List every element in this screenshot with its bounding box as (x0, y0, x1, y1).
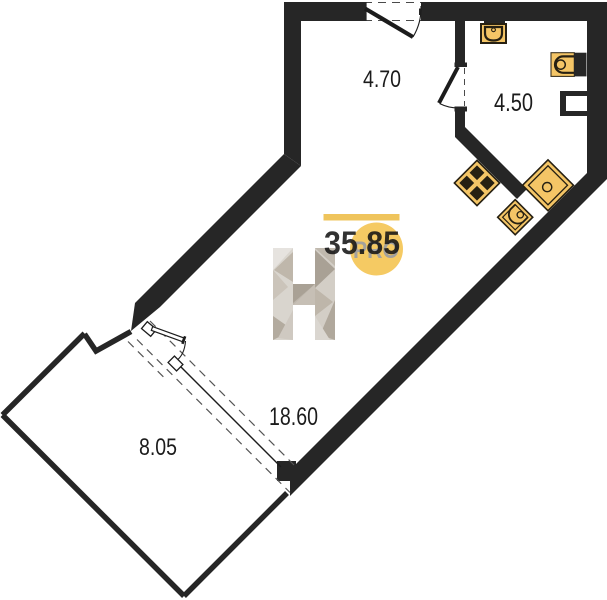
svg-text:8.05: 8.05 (139, 434, 177, 461)
svg-text:35.85: 35.85 (324, 225, 400, 261)
svg-text:18.60: 18.60 (269, 403, 318, 431)
svg-text:4.50: 4.50 (494, 89, 533, 117)
svg-text:4.70: 4.70 (363, 66, 401, 93)
